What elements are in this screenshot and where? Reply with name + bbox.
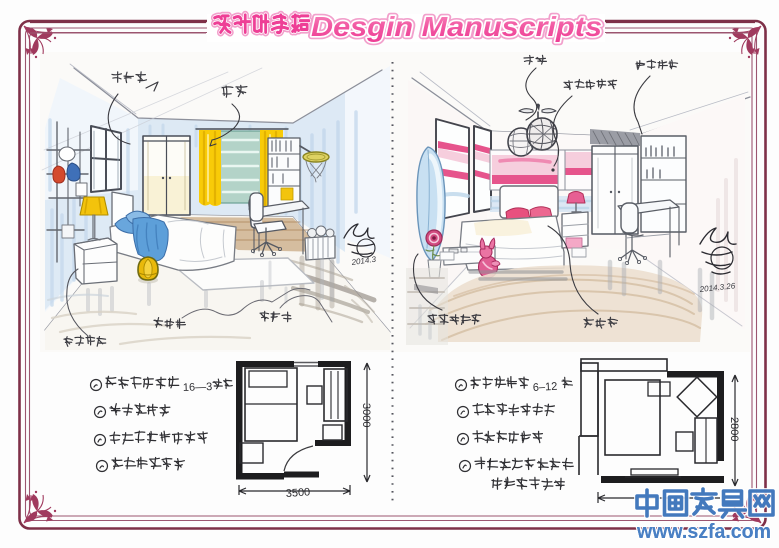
svg-text:2800: 2800 xyxy=(728,417,740,441)
svg-text:www.szfa.com: www.szfa.com xyxy=(636,521,771,543)
svg-text:3500: 3500 xyxy=(285,486,310,500)
svg-text:Desgin Manuscripts: Desgin Manuscripts xyxy=(311,11,602,42)
svg-text:3000: 3000 xyxy=(360,403,372,427)
svg-text:6–12: 6–12 xyxy=(533,381,558,394)
svg-text:16—3: 16—3 xyxy=(183,381,213,394)
